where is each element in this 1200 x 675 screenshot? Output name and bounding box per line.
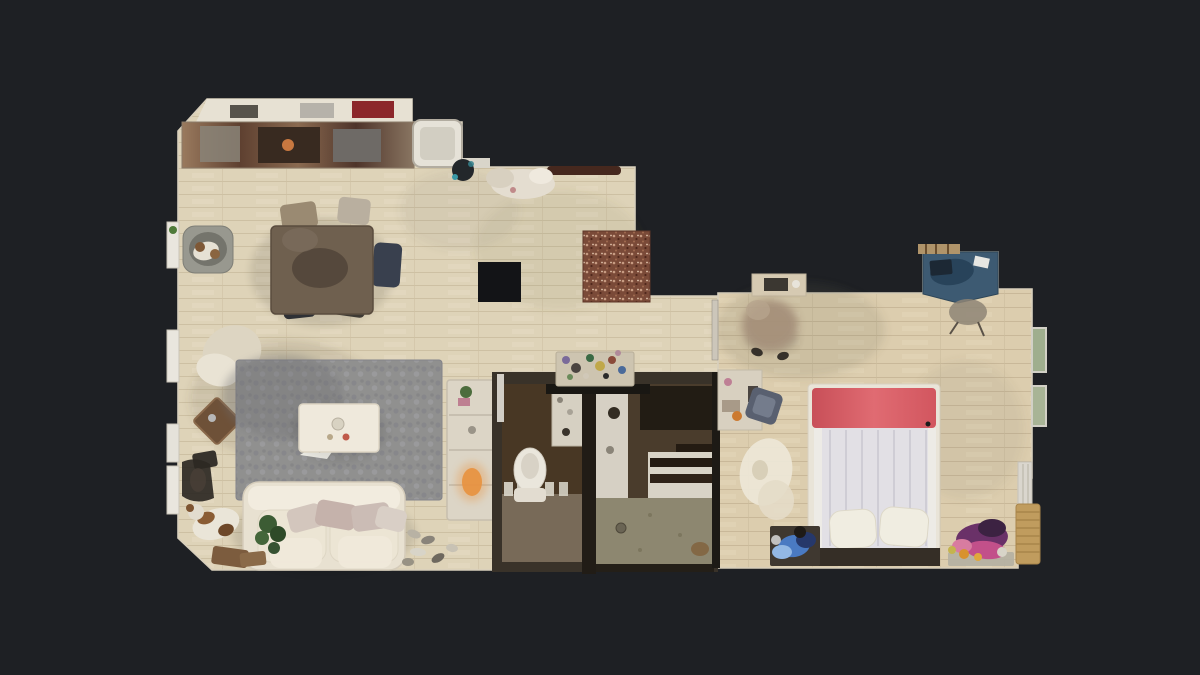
divider-wall bbox=[582, 384, 596, 574]
sink-item bbox=[606, 446, 614, 454]
wc-shelf-item bbox=[562, 428, 570, 436]
wicker-basket bbox=[1016, 504, 1040, 564]
shower-floor[interactable] bbox=[596, 498, 714, 566]
window-sill bbox=[167, 466, 179, 514]
table-highlight bbox=[282, 228, 318, 252]
sink bbox=[333, 129, 381, 162]
purple-clothes bbox=[978, 519, 1006, 537]
toilet-base bbox=[514, 488, 546, 502]
laptop bbox=[929, 259, 952, 276]
speckled-doormat bbox=[583, 231, 650, 302]
cabinet-item bbox=[300, 103, 334, 118]
drain bbox=[616, 523, 626, 533]
plant-on-sill bbox=[169, 226, 177, 234]
sink-counter bbox=[596, 384, 628, 498]
double-bed bbox=[808, 384, 940, 566]
wc-floor-lower bbox=[502, 494, 582, 562]
dining-chair bbox=[371, 242, 402, 288]
plant bbox=[255, 531, 269, 545]
green-window bbox=[1032, 328, 1046, 372]
table-item bbox=[327, 434, 333, 440]
mat-stripe bbox=[650, 474, 712, 483]
wood-clutter bbox=[239, 551, 266, 568]
dining-chair bbox=[337, 196, 372, 225]
table-item bbox=[332, 418, 344, 430]
sheet-edge bbox=[928, 428, 936, 548]
shelf-item bbox=[458, 398, 470, 406]
sheepskin-shade bbox=[752, 460, 768, 480]
silver-object bbox=[208, 414, 216, 422]
mat-stripe bbox=[650, 458, 712, 467]
bookshelf bbox=[447, 380, 497, 520]
wc-shelf-item bbox=[557, 397, 563, 403]
laundry-pile bbox=[486, 168, 514, 188]
corridor-wall bbox=[712, 300, 718, 360]
sofa-ottoman bbox=[270, 538, 322, 568]
dog-ear bbox=[186, 504, 194, 512]
floor-speck bbox=[678, 533, 682, 537]
mirror bbox=[640, 386, 714, 430]
white-item bbox=[771, 535, 781, 545]
plant bbox=[270, 526, 286, 542]
floor-stain bbox=[691, 542, 709, 556]
headboard-tag bbox=[926, 422, 931, 427]
laundry-item bbox=[510, 187, 516, 193]
mosaic-shelf bbox=[556, 350, 634, 386]
toilet-seat bbox=[521, 453, 539, 479]
laundry-pile bbox=[529, 168, 553, 184]
window-sill bbox=[167, 424, 179, 462]
tub-inner bbox=[420, 127, 455, 160]
appliance bbox=[200, 126, 240, 162]
green-window bbox=[1032, 386, 1046, 426]
window-sill bbox=[167, 330, 179, 382]
table-item bbox=[343, 434, 350, 441]
wc-shelf bbox=[552, 390, 586, 446]
radiator-bar bbox=[504, 482, 513, 496]
desk-chair-blur bbox=[949, 299, 987, 325]
dog-spot bbox=[210, 249, 220, 259]
floorplan-canvas[interactable] bbox=[0, 0, 1200, 675]
fan-blade bbox=[468, 161, 474, 167]
bed-pillow bbox=[878, 506, 929, 548]
left-windows bbox=[167, 222, 179, 514]
living-room bbox=[222, 354, 442, 500]
radiator-bar bbox=[559, 482, 568, 496]
wall-shelf-item bbox=[764, 278, 788, 291]
book-row bbox=[918, 244, 960, 254]
dark-item bbox=[794, 526, 806, 538]
wall-shelf-item bbox=[792, 280, 800, 288]
fan-blade bbox=[452, 174, 458, 180]
shelf-plant bbox=[460, 386, 472, 398]
wall-stub-white bbox=[497, 374, 504, 422]
bed-pillow bbox=[829, 508, 878, 549]
plant bbox=[268, 542, 280, 554]
bottom-wall bbox=[596, 564, 714, 572]
dresser-item bbox=[722, 400, 740, 412]
cabinet-item bbox=[230, 105, 258, 118]
coat-rod bbox=[547, 166, 621, 175]
yellow-item bbox=[948, 546, 956, 554]
sofa-ottoman bbox=[338, 536, 392, 568]
bed-headboard-red bbox=[812, 388, 936, 428]
orange-item bbox=[959, 549, 969, 559]
lamp bbox=[462, 468, 482, 496]
red-appliance bbox=[352, 101, 394, 118]
wc-shelf-item bbox=[567, 409, 573, 415]
floor-speck bbox=[648, 513, 652, 517]
black-floor-square bbox=[478, 262, 521, 302]
orange-item bbox=[974, 553, 982, 561]
dark-nook-inner bbox=[190, 468, 206, 492]
pan bbox=[282, 139, 294, 151]
floor-speck bbox=[638, 548, 642, 552]
white-item bbox=[997, 547, 1007, 557]
sink-bowl bbox=[608, 407, 620, 419]
viewer-stage bbox=[0, 0, 1200, 675]
mat-stripe bbox=[676, 444, 714, 452]
table-centerpiece bbox=[292, 248, 348, 288]
bathroom-block[interactable] bbox=[492, 372, 720, 574]
dresser-item bbox=[724, 378, 732, 386]
shelf-item bbox=[468, 426, 476, 434]
bed-bench bbox=[810, 548, 940, 566]
dog-spot bbox=[195, 242, 205, 252]
blue-clothes bbox=[772, 545, 792, 559]
radiator-bar bbox=[545, 482, 554, 496]
dresser-item bbox=[732, 411, 742, 421]
